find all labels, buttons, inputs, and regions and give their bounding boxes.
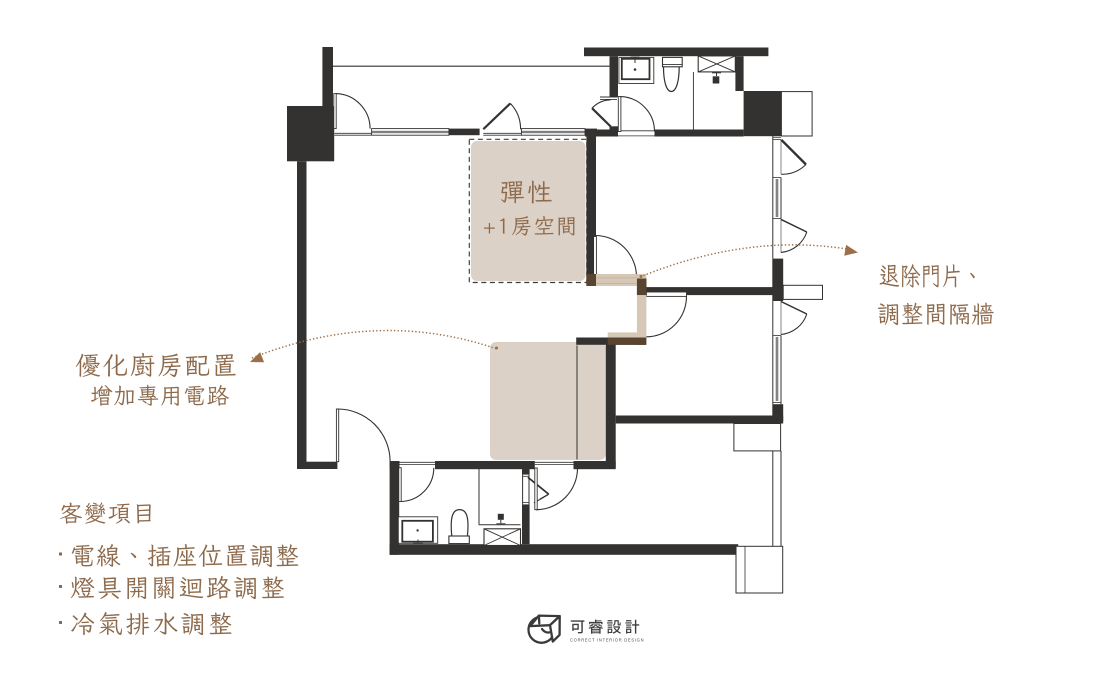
svg-text:CORRECT INTERIOR DESIGN: CORRECT INTERIOR DESIGN: [570, 638, 644, 643]
